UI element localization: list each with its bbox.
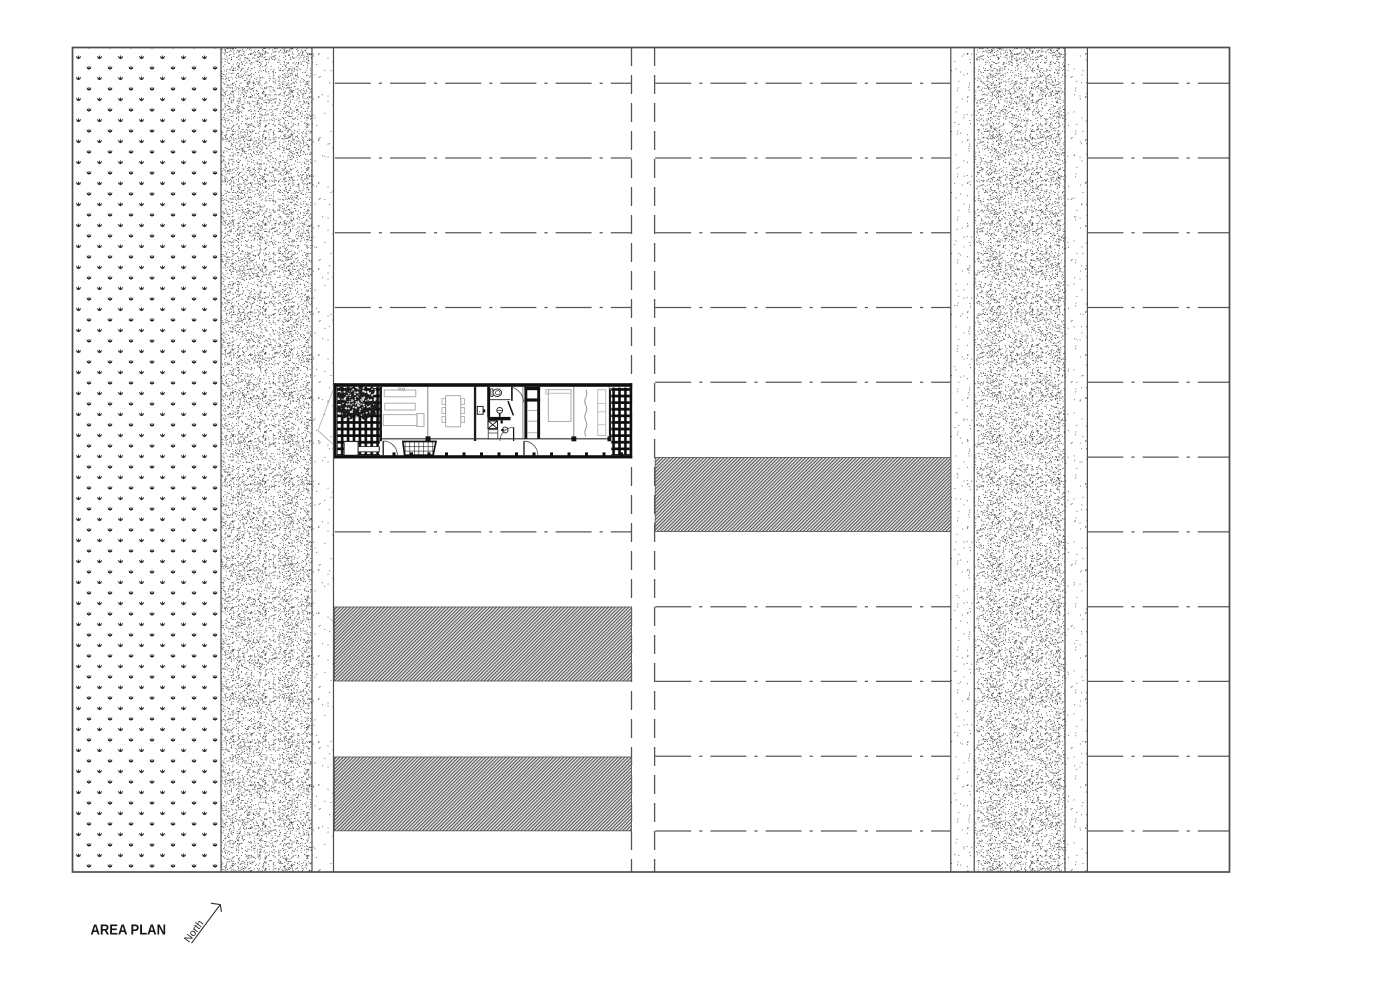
svg-text:AREA PLAN: AREA PLAN <box>91 923 167 939</box>
